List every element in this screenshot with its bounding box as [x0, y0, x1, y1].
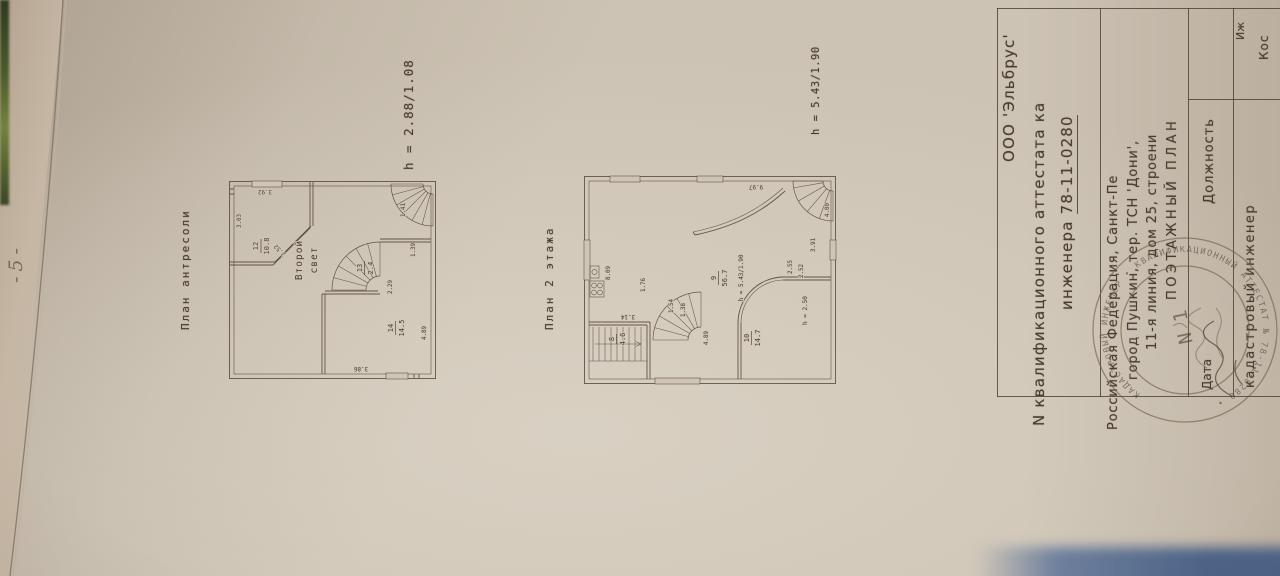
room10-area: 14.7 — [754, 330, 762, 347]
dim-3.86: 3.86 — [354, 365, 368, 371]
dim-3.14: 3.14 — [621, 313, 635, 319]
dim-4.89: 4.89 — [422, 326, 428, 340]
dim-1.38: 1.38 — [681, 303, 687, 317]
attestation-number: 78-11-0280 — [1058, 115, 1078, 214]
cadastral-engineer-stamp: КАДАСТРОВЫЙ ИНЖЕНЕР • КВАЛИФИКАЦИОННЫЙ А… — [1085, 230, 1280, 430]
title-block-top-border — [997, 8, 998, 397]
table-cell-name-fragment: Кос — [1257, 35, 1271, 60]
dim-8.09: 8.09 — [606, 266, 612, 280]
plan-antresol-title: План антресоли — [179, 209, 192, 330]
table-header-position: Должность — [1202, 118, 1217, 204]
company-name: ООО 'Эльбрус' — [1000, 33, 1018, 162]
room10-height-note: h = 2.50 — [802, 296, 809, 325]
room12-area: 10.8 — [263, 238, 271, 255]
void-label-line1: Второй — [294, 240, 305, 280]
table-cell-name-fragment-top: Иж — [1234, 22, 1247, 40]
background-table-strip — [0, 0, 9, 205]
dim-4.89: 4.89 — [704, 331, 710, 345]
dim-1.41: 1.41 — [401, 203, 407, 217]
dim-2.29: 2.29 — [388, 280, 394, 294]
room8-number: 8 — [608, 337, 616, 341]
dim-4.00: 4.00 — [825, 203, 831, 217]
engineer-prefix: инженера — [1058, 214, 1076, 310]
handwritten-page-number: -5- — [5, 231, 27, 295]
plan-floor2-title: План 2 этажа — [543, 227, 556, 330]
room13-area: 2.4 — [367, 262, 375, 275]
dim-3.03: 3.03 — [237, 214, 243, 228]
title-block-right-border — [997, 8, 1280, 9]
room10-number: 10 — [743, 334, 751, 342]
engineer-line: инженера 78-11-0280 — [1058, 115, 1076, 310]
room8-area: 4.6 — [619, 333, 627, 346]
dim-3.92: 3.92 — [258, 188, 272, 194]
dim-2.52: 2.52 — [273, 243, 287, 257]
room13-number: 13 — [356, 264, 364, 272]
dim-9.97: 9.97 — [749, 183, 763, 189]
room9-area: 56.7 — [721, 270, 729, 287]
dim-1.76: 1.76 — [641, 278, 647, 292]
plan-floor2-drawing: 8 4.6 9 56.7 10 14.7 h = 5.43/1.90 h = 2… — [583, 175, 837, 385]
room14-number: 14 — [387, 324, 395, 332]
document-page: План антресоли — [0, 0, 1280, 576]
photographed-document: План антресоли — [0, 0, 1280, 576]
room9-number: 9 — [710, 276, 718, 280]
dim-3.91: 3.91 — [811, 238, 817, 252]
antresol-height-note: h = 2.88/1.08 — [401, 59, 416, 170]
room12-number: 12 — [252, 242, 260, 250]
plan-antresol-drawing: Второй свет 12 10.8 13 2.4 14 14.5 3.03 … — [228, 180, 437, 380]
room14-area: 14.5 — [398, 320, 406, 337]
dim-1.39: 1.39 — [411, 243, 417, 257]
dim-2.55: 2.55 — [788, 260, 794, 274]
handwritten-date — [1186, 304, 1250, 404]
room9-height-note: h = 5.43/1.90 — [738, 254, 745, 301]
dim-2.52: 2.52 — [799, 264, 805, 278]
floor2-height-note: h = 5.43/1.90 — [810, 46, 822, 135]
void-label-line2: свет — [309, 247, 320, 274]
table-column-divider — [1188, 99, 1280, 100]
dim-1.54: 1.54 — [669, 299, 675, 313]
attestation-line: N квалификационного аттестата ка — [1030, 102, 1048, 426]
